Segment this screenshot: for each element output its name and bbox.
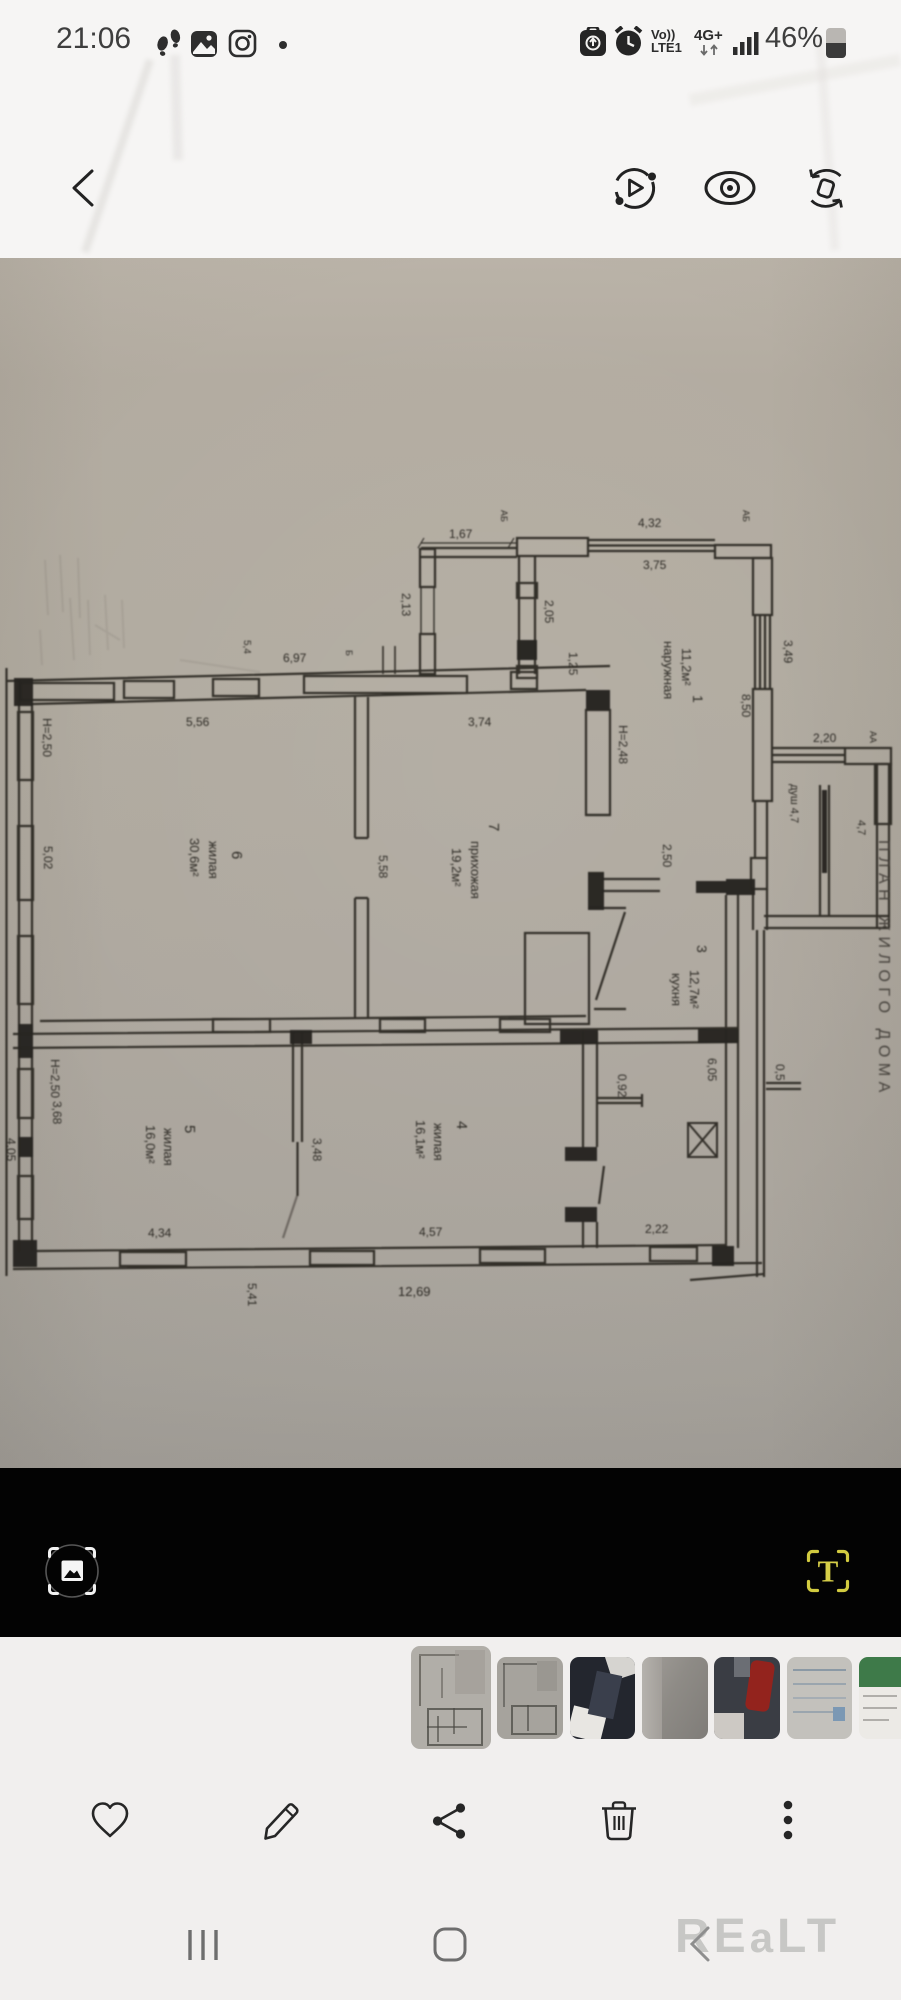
svg-text:T: T [818,1554,839,1589]
svg-text:0,5: 0,5 [773,1064,787,1081]
svg-text:прихожая: прихожая [468,841,483,899]
svg-text:16,1м²: 16,1м² [413,1120,428,1159]
svg-text:жилая: жилая [431,1123,446,1161]
svg-text:3,49: 3,49 [781,640,795,664]
svg-text:Б: Б [344,650,354,656]
svg-text:6: 6 [228,851,245,859]
svg-text:4,57: 4,57 [419,1225,443,1239]
svg-text:2,13: 2,13 [399,593,413,617]
svg-text:H=2,48: H=2,48 [616,725,630,764]
svg-text:2,50: 2,50 [660,844,674,868]
svg-text:5,4: 5,4 [241,640,252,654]
svg-text:4,32: 4,32 [638,516,662,530]
svg-text:H=2,50: H=2,50 [40,718,54,757]
svg-text:4: 4 [453,1121,470,1129]
svg-text:7: 7 [485,823,502,831]
svg-text:кухня: кухня [669,973,684,1006]
svg-text:5,58: 5,58 [376,855,390,879]
svg-text:1: 1 [690,695,706,703]
svg-text:2,22: 2,22 [645,1222,669,1236]
svg-text:5: 5 [181,1125,198,1133]
svg-text:H=2,50: H=2,50 [48,1059,62,1098]
svg-text:8,50: 8,50 [739,694,753,718]
svg-text:жилая: жилая [161,1128,176,1166]
svg-text:2,05: 2,05 [542,600,556,624]
svg-text:1,25: 1,25 [566,652,580,676]
svg-text:5,41: 5,41 [245,1283,259,1307]
svg-text:3: 3 [694,945,710,953]
svg-text:3,68: 3,68 [50,1101,64,1125]
svg-text:19,2м²: 19,2м² [449,848,464,887]
svg-text:6,97: 6,97 [283,651,307,665]
svg-text:жилая: жилая [206,841,221,879]
svg-text:3,74: 3,74 [468,715,492,729]
svg-text:3,75: 3,75 [643,558,667,572]
svg-text:16,0м²: 16,0м² [143,1125,158,1164]
svg-text:12,69: 12,69 [398,1284,431,1299]
svg-text:6,05: 6,05 [705,1058,719,1082]
svg-text:30,6м²: 30,6м² [187,838,202,877]
svg-text:12,7м²: 12,7м² [687,970,702,1009]
svg-text:5,02: 5,02 [41,846,55,870]
svg-text:4,34: 4,34 [148,1226,172,1240]
svg-text:АБ: АБ [499,510,509,522]
svg-text:АБ: АБ [741,510,751,522]
svg-text:3,48: 3,48 [310,1138,324,1162]
svg-text:5,56: 5,56 [186,715,210,729]
svg-text:4,7: 4,7 [855,820,867,835]
svg-text:наружная: наружная [661,641,676,699]
svg-text:1,67: 1,67 [449,527,473,541]
svg-text:АА: АА [868,731,878,743]
svg-text:душ 4,7: душ 4,7 [788,784,800,823]
svg-text:4,05: 4,05 [4,1138,18,1162]
svg-text:2,20: 2,20 [813,731,837,745]
svg-text:0,92: 0,92 [615,1074,629,1098]
svg-text:11,2м²: 11,2м² [679,648,694,686]
svg-text:ПЛАН ЖИЛОГО ДОМА: ПЛАН ЖИЛОГО ДОМА [875,840,892,1098]
